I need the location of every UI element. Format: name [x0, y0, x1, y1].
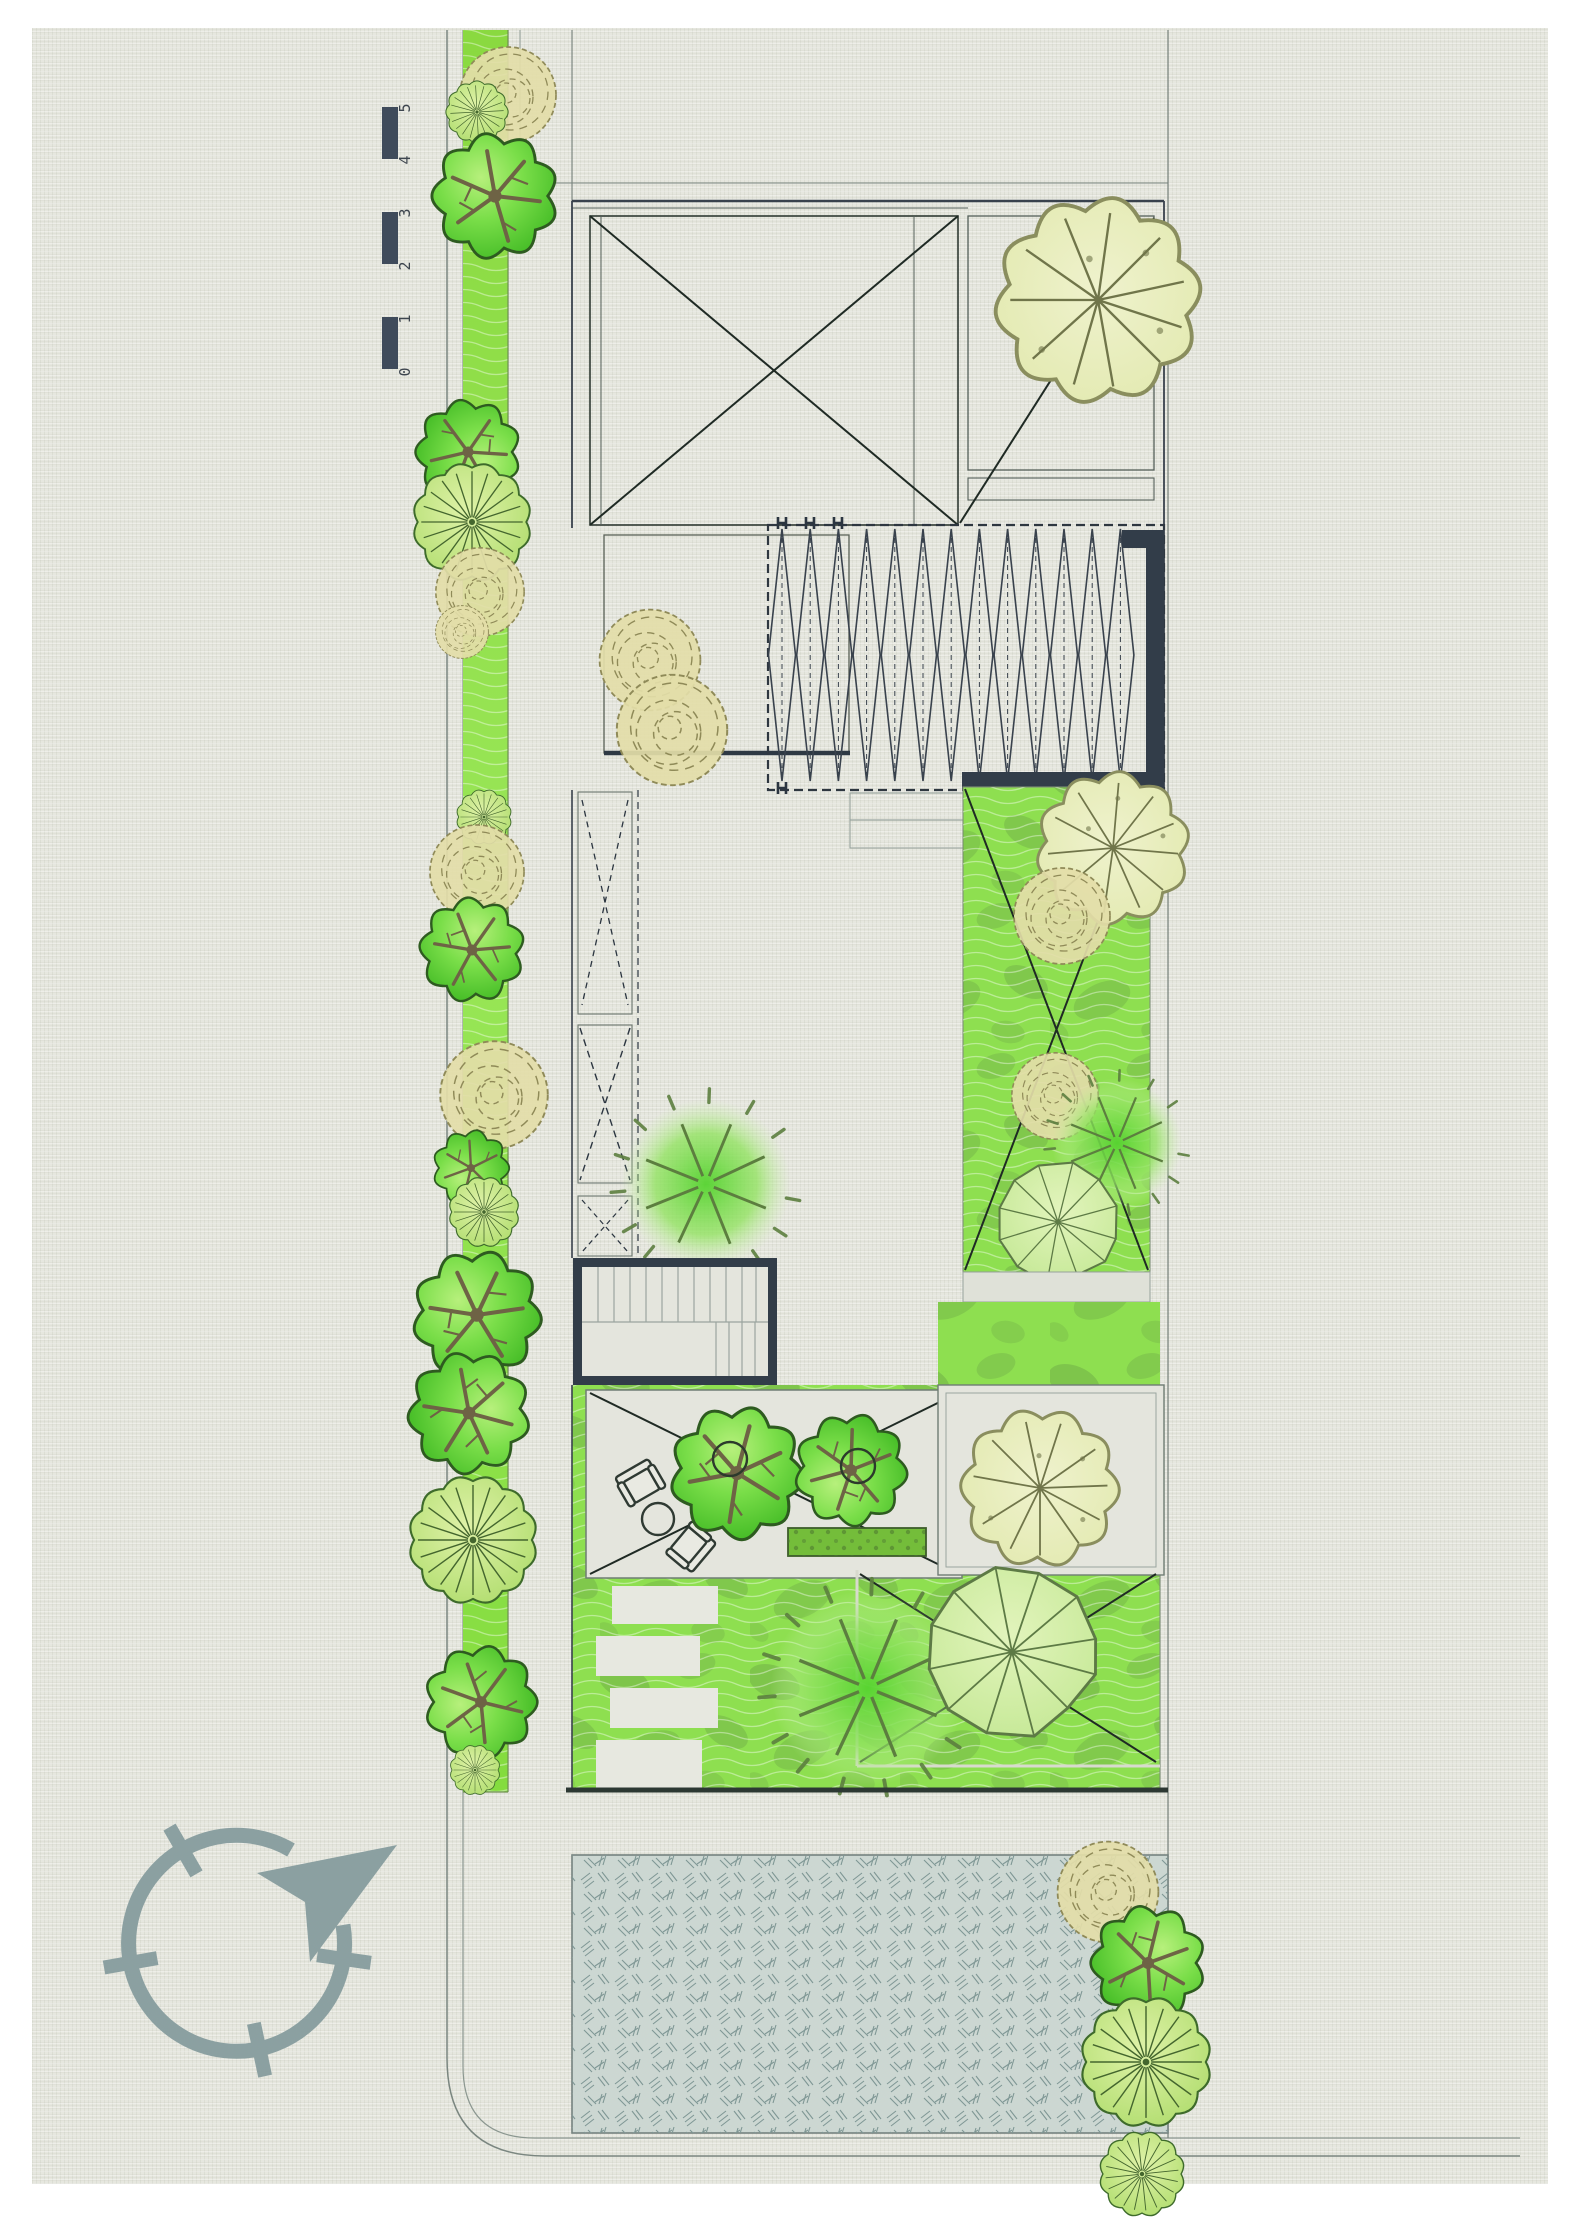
clamp-mark-icon [834, 517, 842, 529]
tree-fan-canopy [451, 1746, 500, 1795]
tree-scribble [436, 606, 489, 659]
ramp-x-dashed [582, 1200, 628, 1252]
pergola-louver-roof [600, 517, 1164, 794]
louver-blade [994, 529, 1021, 781]
louver-blade [1107, 529, 1134, 781]
louver-blade [1079, 529, 1106, 781]
tree-scribble [1014, 868, 1110, 964]
coffee-table [642, 1503, 674, 1535]
compass-arrow [257, 1845, 397, 1962]
tree-fan-canopy [410, 1477, 535, 1602]
clamp-mark-icon [778, 517, 786, 529]
roof-terrace-x-room [590, 216, 958, 525]
shrub-scribble [617, 675, 727, 785]
porch-steps [850, 793, 968, 848]
compass-north-arrow-icon [103, 1824, 397, 2078]
paved-plaza [572, 1842, 1213, 2231]
clamp-mark-icon [778, 782, 786, 794]
stair-enclosure [573, 1258, 777, 1385]
tree-fan-canopy [450, 1178, 519, 1247]
louver-blade [1022, 529, 1049, 781]
clamp-mark-icon [806, 517, 814, 529]
tree-soft-canopy [611, 1089, 800, 1278]
tree-fan-canopy [1085, 2117, 1199, 2231]
louver-blade [769, 529, 796, 781]
louver-blade [881, 529, 908, 781]
louver-blade [853, 529, 880, 781]
louver-blade [1051, 529, 1078, 781]
louver-blade [910, 529, 937, 781]
louver-blade [797, 529, 824, 781]
south-garden [566, 1385, 1168, 1796]
northeast-courtyard [960, 181, 1214, 523]
scale-bar: 0 1 2 3 4 5 [382, 103, 414, 376]
drawing-sheet: 0 1 2 3 4 5 [0, 0, 1580, 2234]
scale-label-2: 2 [396, 261, 414, 270]
scale-label-4: 4 [396, 155, 414, 164]
east-courtyard-garden [938, 745, 1215, 1386]
site-plan-svg: 0 1 2 3 4 5 [0, 0, 1580, 2234]
ramp-x-dashed [582, 800, 628, 1005]
tree-lobed-canopy [432, 134, 555, 259]
path-band [963, 1272, 1150, 1302]
louver-blades [769, 529, 1134, 781]
scale-label-5: 5 [396, 103, 414, 112]
louver-blade [825, 529, 852, 781]
louver-blade [966, 529, 993, 781]
tree-pale-canopy [982, 181, 1213, 419]
scale-label-1: 1 [396, 314, 414, 323]
east-patio [938, 1385, 1164, 1589]
tree-fan-canopy [1082, 1998, 1209, 2125]
louver-blade [938, 529, 965, 781]
tree-scribble [440, 1041, 548, 1149]
scale-label-3: 3 [396, 208, 414, 217]
scale-label-0: 0 [396, 367, 414, 376]
